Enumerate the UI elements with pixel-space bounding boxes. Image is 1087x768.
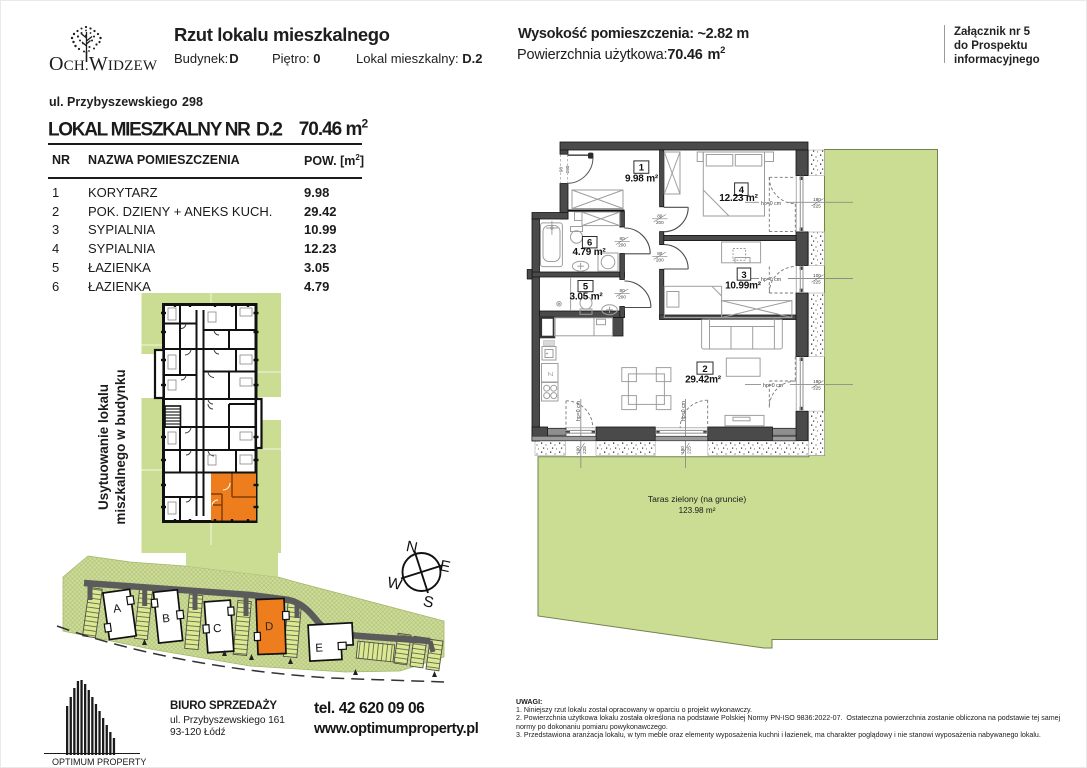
svg-text:9.98 m²: 9.98 m² xyxy=(625,174,659,185)
svg-text:180: 180 xyxy=(680,446,685,454)
svg-text:Z: Z xyxy=(546,371,555,376)
svg-text:12.23 m²: 12.23 m² xyxy=(719,193,758,204)
svg-text:S: S xyxy=(422,593,436,612)
svg-text:200: 200 xyxy=(618,295,626,300)
svg-text:C: C xyxy=(213,623,222,636)
svg-text:D: D xyxy=(265,621,274,633)
svg-text:80: 80 xyxy=(657,214,663,219)
svg-text:4.79 m²: 4.79 m² xyxy=(572,247,606,258)
svg-text:80: 80 xyxy=(620,236,626,241)
svg-text:80: 80 xyxy=(657,251,663,256)
svg-text:2: 2 xyxy=(702,364,707,375)
svg-text:225: 225 xyxy=(582,446,587,454)
svg-text:29.42m²: 29.42m² xyxy=(685,375,722,386)
svg-text:123.98 m²: 123.98 m² xyxy=(679,506,716,515)
svg-text:E: E xyxy=(315,642,324,654)
svg-text:10.99m²: 10.99m² xyxy=(725,281,762,292)
svg-text:3: 3 xyxy=(741,270,746,281)
svg-text:hp=0 cm: hp=0 cm xyxy=(761,277,781,283)
svg-text:W: W xyxy=(386,574,404,594)
svg-text:E: E xyxy=(438,557,452,576)
svg-text:180: 180 xyxy=(813,379,821,384)
svg-text:225: 225 xyxy=(687,446,692,454)
svg-text:200: 200 xyxy=(656,258,664,263)
svg-text:1: 1 xyxy=(639,163,645,174)
svg-text:180: 180 xyxy=(813,197,821,202)
svg-text:Taras zielony (na gruncie): Taras zielony (na gruncie) xyxy=(648,494,747,504)
svg-text:200: 200 xyxy=(618,243,626,248)
svg-text:100: 100 xyxy=(575,446,580,454)
svg-text:hp=0 cm: hp=0 cm xyxy=(576,401,582,421)
svg-text:80: 80 xyxy=(620,288,626,293)
svg-text:200: 200 xyxy=(656,220,664,225)
svg-text:100: 100 xyxy=(813,273,821,278)
svg-text:3.05 m²: 3.05 m² xyxy=(569,292,603,303)
